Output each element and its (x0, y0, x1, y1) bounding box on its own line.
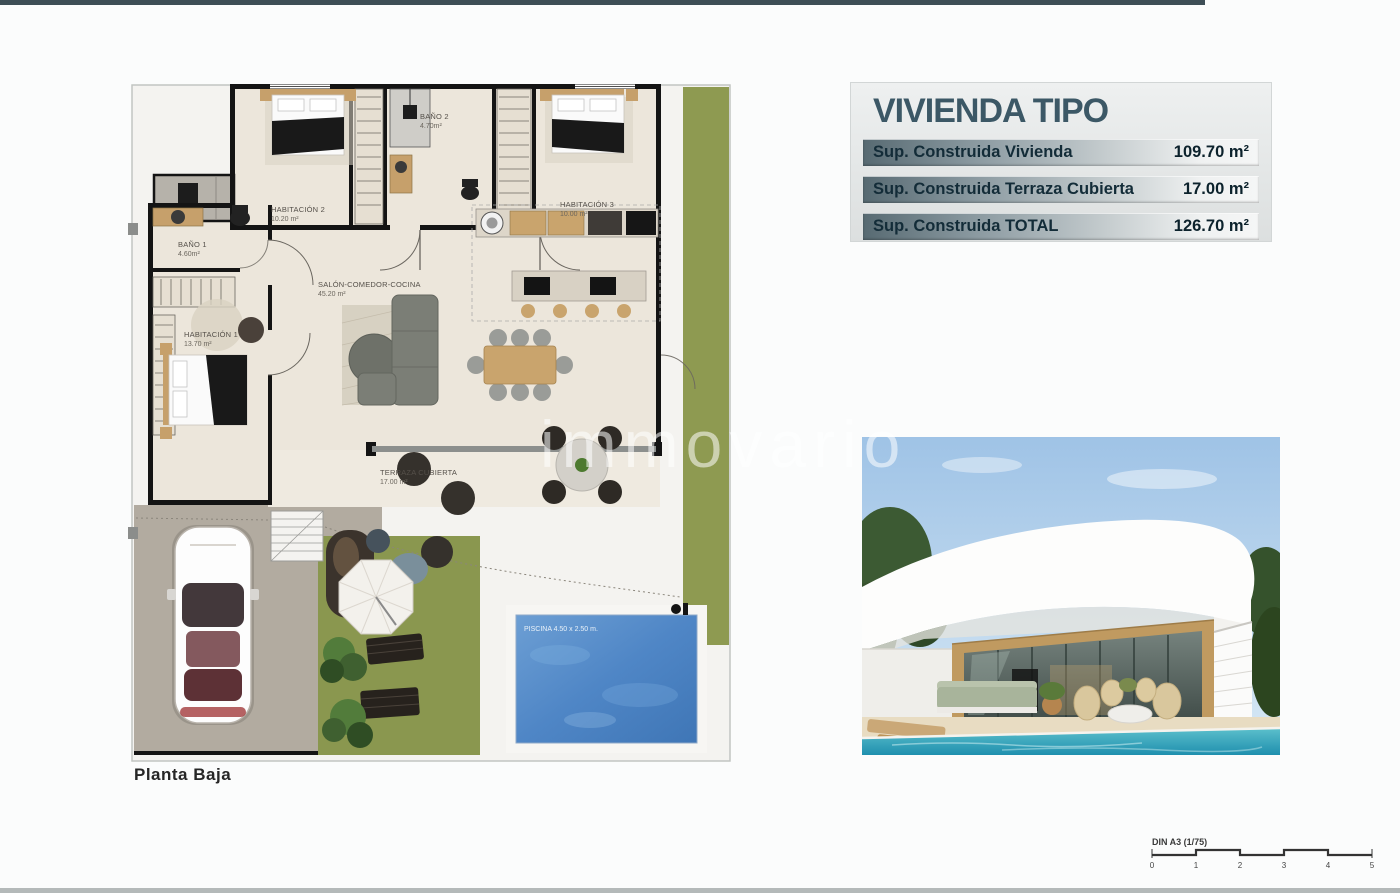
scale-tick: 0 (1150, 861, 1155, 870)
gate-post (671, 604, 681, 614)
label-bano-2: BAÑO 2 (420, 112, 449, 121)
svg-text:17.00 m²: 17.00 m² (380, 479, 408, 486)
parasol (339, 560, 413, 634)
label-habitacion-1: HABITACIÓN 1 (184, 330, 238, 339)
info-row-label: Sup. Construida TOTAL (873, 217, 1058, 236)
svg-text:10.00 m²: 10.00 m² (560, 211, 588, 218)
bottom-border-band (0, 888, 1400, 893)
label-habitacion-3: HABITACIÓN 3 (560, 200, 614, 209)
floor-plan-drawing: PISCINA 4.50 x 2.50 m. (120, 75, 732, 763)
floor-plan: PISCINA 4.50 x 2.50 m. (120, 75, 732, 763)
fence-post (128, 223, 138, 235)
sofa-area (342, 295, 438, 405)
scale-tick: 1 (1194, 861, 1199, 870)
car (167, 525, 259, 725)
info-row-vivienda: Sup. Construida Vivienda 109.70 m² (863, 139, 1259, 166)
svg-text:4.70m²: 4.70m² (420, 123, 442, 130)
scale-bar-line (1152, 850, 1372, 855)
bathroom-1-fixtures (153, 205, 250, 226)
label-bano-1: BAÑO 1 (178, 240, 207, 249)
pool: PISCINA 4.50 x 2.50 m. (516, 615, 697, 743)
bed-habitacion-2 (260, 89, 356, 165)
pool-label: PISCINA 4.50 x 2.50 m. (524, 626, 598, 633)
living-floor (233, 228, 658, 450)
svg-text:4.60m²: 4.60m² (178, 251, 200, 258)
villa-render-photo (862, 437, 1280, 755)
label-terraza: TERRAZA CUBIERTA (380, 468, 457, 477)
top-border-band (0, 0, 1205, 5)
info-row-label: Sup. Construida Terraza Cubierta (873, 180, 1134, 199)
scale-tick: 5 (1370, 861, 1375, 870)
label-salon: SALÓN-COMEDOR-COCINA (318, 280, 421, 289)
scale-tick: 2 (1238, 861, 1243, 870)
garden-grass-right (683, 87, 729, 645)
info-row-total: Sup. Construida TOTAL 126.70 m² (863, 213, 1259, 240)
svg-text:45.20 m²: 45.20 m² (318, 291, 346, 298)
scale-bar: DIN A3 (1/75) 0 1 2 3 4 5 (1140, 834, 1385, 879)
gate (683, 603, 688, 615)
scale-tick: 3 (1282, 861, 1287, 870)
info-row-value: 109.70 m² (1174, 143, 1249, 162)
fence-post (128, 527, 138, 539)
info-row-value: 126.70 m² (1174, 217, 1249, 236)
info-row-terraza: Sup. Construida Terraza Cubierta 17.00 m… (863, 176, 1259, 203)
info-panel-title: VIVIENDA TIPO (873, 92, 1271, 131)
svg-text:13.70 m²: 13.70 m² (184, 341, 212, 348)
info-row-label: Sup. Construida Vivienda (873, 143, 1073, 162)
exterior-stairs (271, 511, 323, 561)
stairs (1214, 622, 1252, 722)
svg-text:10.20 m²: 10.20 m² (271, 216, 299, 223)
plan-caption: Planta Baja (134, 765, 231, 785)
scale-tick: 4 (1326, 861, 1331, 870)
info-row-value: 17.00 m² (1183, 180, 1249, 199)
info-panel: VIVIENDA TIPO Sup. Construida Vivienda 1… (850, 82, 1272, 242)
label-habitacion-2: HABITACIÓN 2 (271, 205, 325, 214)
scale-bar-label: DIN A3 (1/75) (1152, 837, 1207, 847)
bed-habitacion-3 (540, 89, 638, 163)
